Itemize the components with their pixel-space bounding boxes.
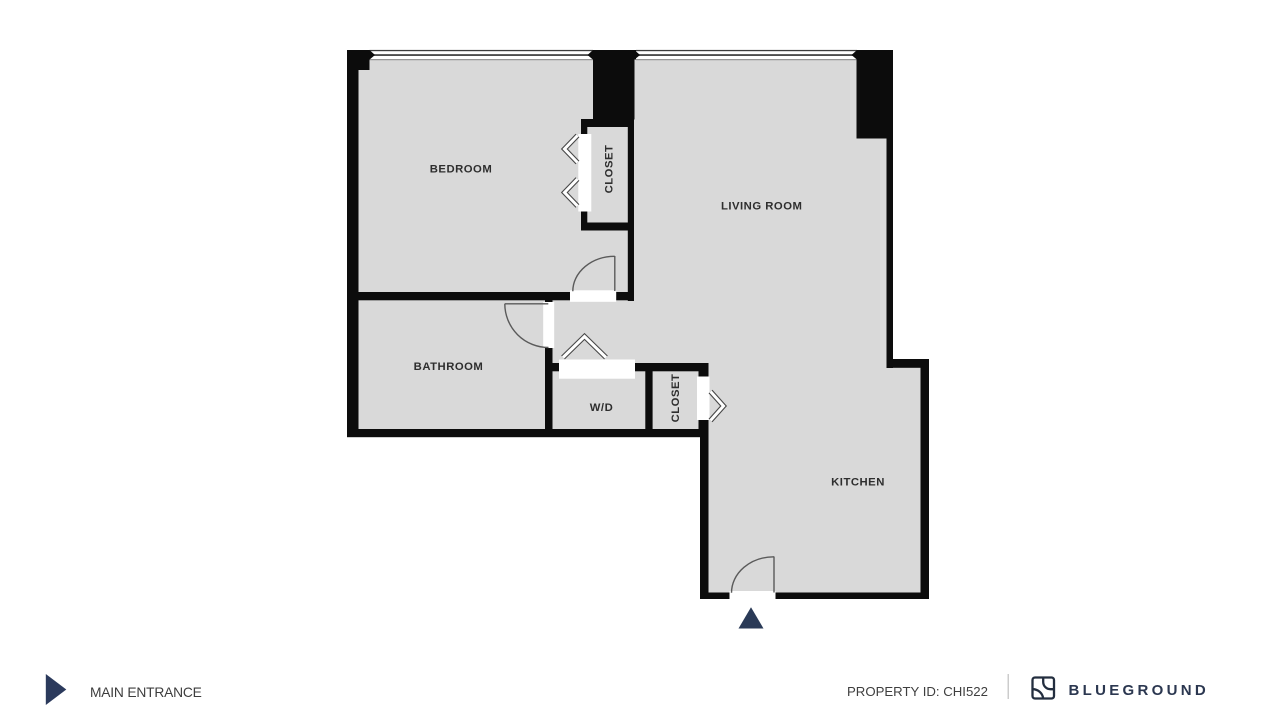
svg-text:PROPERTY ID: CHI522: PROPERTY ID: CHI522	[847, 684, 988, 699]
svg-text:CLOSET: CLOSET	[670, 374, 682, 423]
svg-text:LIVING ROOM: LIVING ROOM	[721, 201, 802, 213]
svg-text:W/D: W/D	[590, 402, 613, 414]
svg-text:CLOSET: CLOSET	[604, 145, 616, 194]
svg-text:BLUEGROUND: BLUEGROUND	[1069, 682, 1210, 699]
svg-text:BEDROOM: BEDROOM	[430, 163, 493, 175]
svg-text:KITCHEN: KITCHEN	[831, 477, 885, 489]
svg-text:BATHROOM: BATHROOM	[414, 361, 484, 373]
svg-text:MAIN ENTRANCE: MAIN ENTRANCE	[90, 685, 202, 700]
